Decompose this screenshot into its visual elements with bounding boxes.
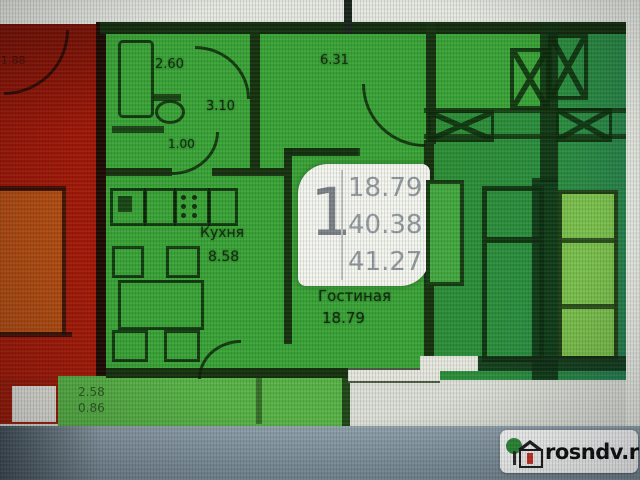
wall-above-plan-tick — [344, 0, 352, 34]
unit-info-badge: 1 18.79 40.38 41.27 — [298, 164, 430, 286]
dimension-label: 0.86 — [78, 402, 105, 415]
lower-wall-right — [342, 376, 350, 426]
stove-icon — [174, 188, 210, 226]
dimension-label: 1.00 — [168, 138, 195, 151]
window-sill-white — [420, 356, 478, 371]
wall-bath-bottom-a — [106, 168, 172, 176]
total-area-value: 41.27 — [348, 249, 422, 275]
area-figures: 18.79 40.38 41.27 — [341, 170, 422, 280]
window-frame — [558, 190, 618, 360]
dimension-label: 2.58 — [78, 386, 105, 399]
window-bar — [562, 238, 614, 243]
wall-dark-band — [532, 178, 558, 380]
toilet-icon — [155, 100, 185, 124]
wall-bath-bottom-b — [212, 168, 292, 176]
room-area-label: 18.79 — [322, 310, 365, 327]
x-brace-icon — [548, 34, 588, 100]
stool-icon — [112, 246, 144, 278]
chair-icon — [112, 330, 148, 362]
right-margin — [626, 0, 640, 432]
listing-photo: 1.88 2.58 0.86 2.60 3.10 1.00 6.31 — [0, 0, 640, 480]
top-margin — [0, 0, 640, 24]
site-watermark: rosndv.ru — [500, 430, 638, 473]
red-wall-h1 — [0, 186, 66, 191]
floor-area-value: 40.38 — [348, 212, 422, 238]
house-icon — [518, 438, 542, 466]
window-frame — [426, 180, 464, 286]
bottom-left-shadow — [0, 426, 100, 480]
room-label: Гостиная — [318, 288, 391, 305]
fridge-icon — [208, 188, 238, 226]
toilet-tank — [153, 94, 181, 101]
counter-unit — [144, 188, 176, 226]
lower-wall-mid — [256, 378, 262, 424]
watermark-text: rosndv.ru — [545, 440, 640, 464]
x-brace-icon — [556, 108, 612, 142]
dimension-label: 3.10 — [206, 100, 235, 114]
x-brace-icon — [428, 110, 494, 142]
bathtub-icon — [118, 40, 154, 118]
sill-dark-strip — [478, 356, 626, 371]
living-area-value: 18.79 — [348, 175, 422, 201]
dimension-label: 2.60 — [155, 58, 184, 72]
room-label: Кухня — [200, 226, 244, 241]
door-opening — [12, 386, 56, 422]
chair-icon — [164, 330, 200, 362]
wall-bath-right — [250, 30, 260, 176]
x-brace-icon — [510, 48, 550, 110]
table-icon — [118, 280, 204, 330]
dimension-label: 6.31 — [320, 54, 349, 68]
stool-icon — [166, 246, 200, 278]
bottom-white-strip — [350, 376, 640, 428]
red-wall-h2 — [0, 332, 72, 337]
sink-icon — [110, 188, 146, 226]
wall-wc-divider — [112, 126, 164, 133]
adjacent-room-orange — [0, 190, 66, 335]
wall-living-top-stub — [290, 148, 358, 156]
wall-kitchen-living — [284, 148, 292, 344]
dimension-label: 1.88 — [1, 55, 26, 67]
window-bar — [562, 304, 614, 309]
room-area-label: 8.58 — [208, 250, 239, 265]
